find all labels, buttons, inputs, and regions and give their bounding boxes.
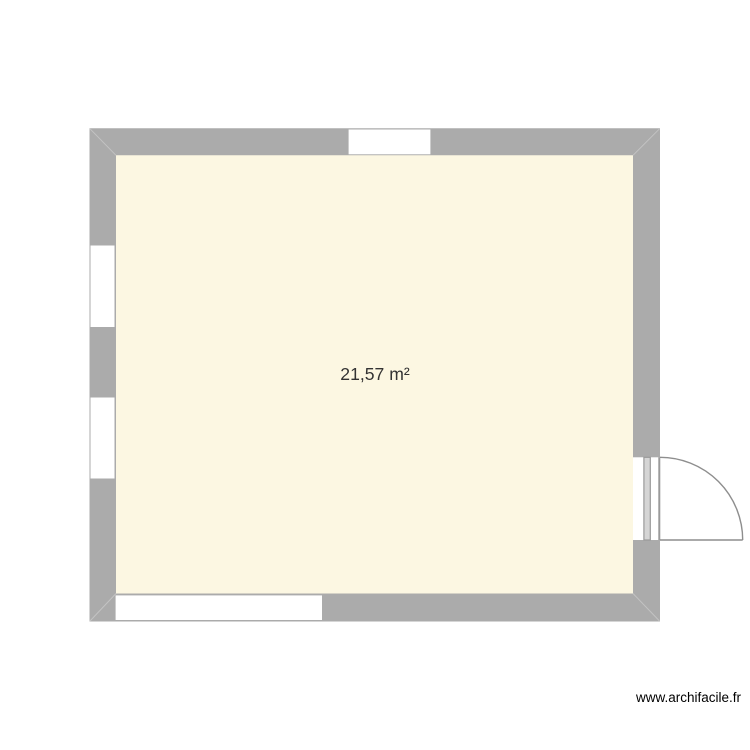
svg-text:21,57 m²: 21,57 m²	[340, 364, 410, 384]
svg-text:www.archifacile.fr: www.archifacile.fr	[635, 690, 742, 705]
